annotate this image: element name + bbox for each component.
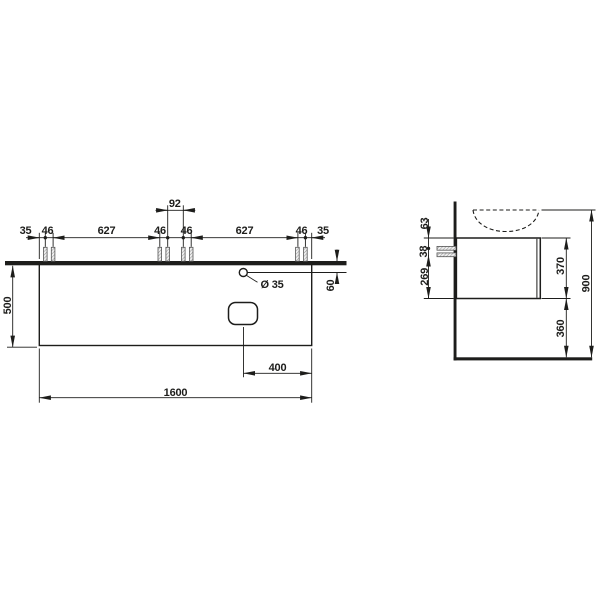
mounting-pin bbox=[189, 247, 193, 261]
dim-label-pair-gap-4: 46 bbox=[296, 225, 308, 237]
dim-height: 500 bbox=[2, 266, 37, 347]
basin-cutout bbox=[229, 303, 258, 325]
dim-label-pair-gap-1: 46 bbox=[42, 225, 54, 237]
dim-label-hole-diameter: Ø 35 bbox=[261, 279, 284, 291]
mounting-pin bbox=[44, 247, 48, 261]
mounting-pin bbox=[166, 247, 170, 261]
dim-label-cutout-from-right: 400 bbox=[269, 362, 287, 374]
mounting-pin bbox=[158, 247, 162, 261]
dim-label-width: 1600 bbox=[164, 387, 188, 399]
leader-line bbox=[246, 275, 257, 282]
dim-label-top-to-screw: 63 bbox=[419, 218, 431, 230]
dim-left-chain: 63 38 269 bbox=[418, 218, 454, 299]
dim-hole-from-top: 60 bbox=[325, 250, 337, 292]
dim-label-margin-left: 35 bbox=[20, 225, 32, 237]
dim-label-screw-spacing: 38 bbox=[418, 246, 430, 258]
dim-cabinet-height: 370 bbox=[542, 238, 571, 299]
dim-floor-clearance: 360 bbox=[555, 299, 567, 358]
dim-label-center-gap: 92 bbox=[169, 198, 181, 210]
chain-point bbox=[166, 236, 169, 239]
dim-top-chain: 35 46 627 46 46 627 46 35 bbox=[20, 205, 329, 259]
mounting-pins-front bbox=[44, 247, 308, 261]
mounting-pin bbox=[182, 247, 186, 261]
mounting-pin bbox=[437, 253, 456, 257]
dim-label-height: 500 bbox=[2, 297, 14, 315]
dim-label-hole-from-top: 60 bbox=[325, 280, 337, 292]
mounting-pins-side bbox=[437, 246, 456, 256]
floor-line bbox=[454, 357, 593, 360]
dim-label-span-1: 627 bbox=[98, 225, 116, 237]
cabinet-side bbox=[456, 238, 540, 299]
mounting-pin bbox=[296, 247, 300, 261]
countertop bbox=[5, 261, 347, 265]
faucet-hole bbox=[239, 269, 247, 277]
dim-label-margin-right: 35 bbox=[317, 225, 329, 237]
side-view: 63 38 269 370 360 900 bbox=[418, 202, 596, 361]
cabinet-front bbox=[39, 263, 311, 345]
dim-cutout-from-right: 400 bbox=[244, 327, 312, 377]
dim-label-screw-to-bottom: 269 bbox=[419, 268, 431, 286]
dim-label-span-2: 627 bbox=[236, 225, 254, 237]
washbasin-outline bbox=[473, 210, 539, 232]
dim-label-pair-gap-2: 46 bbox=[154, 225, 166, 237]
mounting-pin bbox=[51, 247, 55, 261]
mounting-pin bbox=[304, 247, 308, 261]
technical-drawing: Ø 35 35 4 bbox=[0, 0, 600, 600]
dim-label-floor-clearance: 360 bbox=[555, 320, 567, 338]
dim-label-pair-gap-3: 46 bbox=[181, 225, 193, 237]
front-view: Ø 35 35 4 bbox=[2, 198, 347, 403]
mounting-pin bbox=[437, 246, 456, 250]
dim-width: 1600 bbox=[39, 349, 311, 403]
dim-total-height: 900 bbox=[542, 210, 596, 357]
dim-label-cabinet-height: 370 bbox=[555, 257, 567, 275]
dim-center-gap: 92 bbox=[156, 198, 196, 211]
dim-label-total-height: 900 bbox=[581, 275, 593, 293]
washbasin-bowl-dashed bbox=[473, 210, 539, 232]
